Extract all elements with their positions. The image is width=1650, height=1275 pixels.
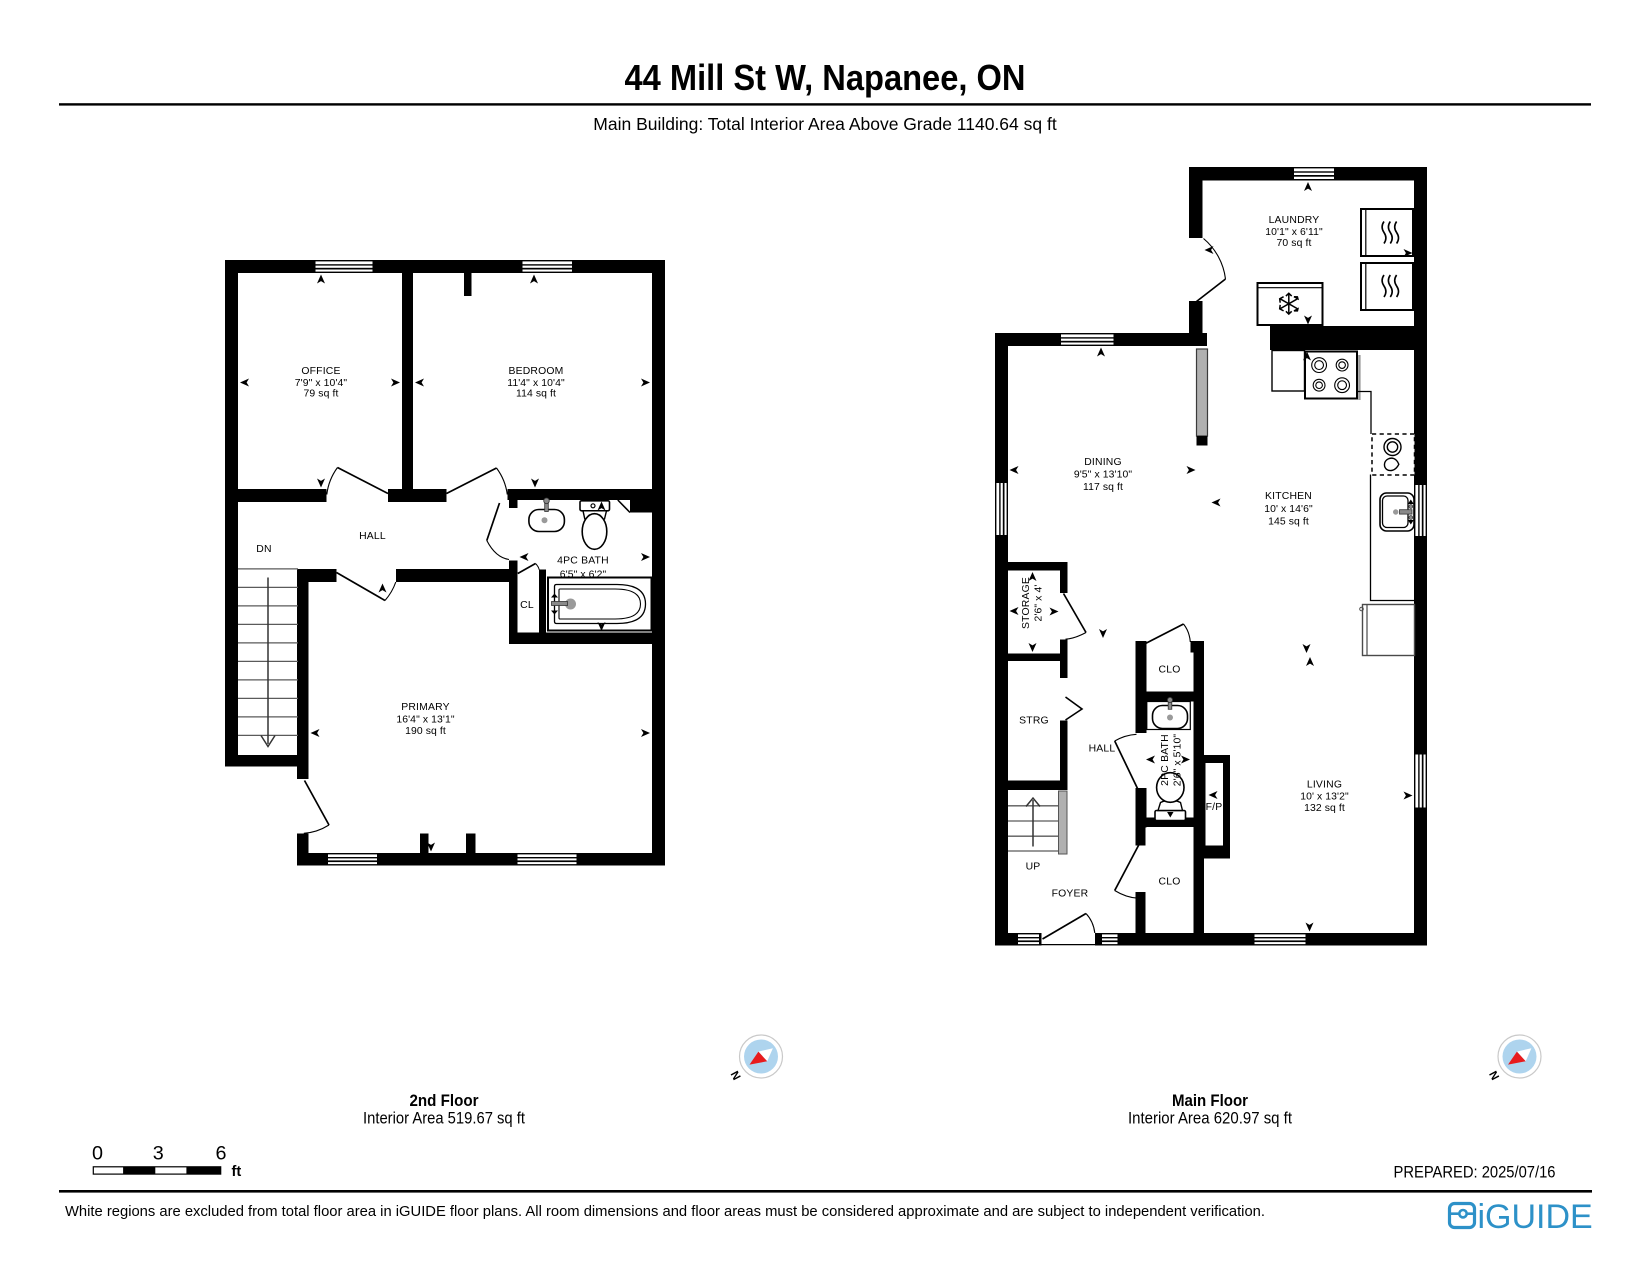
svg-text:10' x 14'6": 10' x 14'6" bbox=[1264, 504, 1313, 515]
svg-text:White regions are excluded fro: White regions are excluded from total fl… bbox=[65, 1203, 1265, 1220]
svg-text:HALL: HALL bbox=[1089, 744, 1116, 755]
svg-text:ft: ft bbox=[232, 1164, 242, 1180]
svg-text:CL: CL bbox=[520, 600, 534, 611]
svg-text:KITCHEN: KITCHEN bbox=[1265, 491, 1312, 502]
svg-text:LAUNDRY: LAUNDRY bbox=[1269, 215, 1320, 226]
svg-text:190 sq ft: 190 sq ft bbox=[405, 726, 446, 737]
svg-text:DINING: DINING bbox=[1084, 457, 1122, 468]
svg-text:2PC BATH: 2PC BATH bbox=[1160, 734, 1171, 786]
svg-text:2'6" x 5'10": 2'6" x 5'10" bbox=[1173, 734, 1184, 787]
svg-text:LIVING: LIVING bbox=[1307, 780, 1342, 791]
svg-text:16'4" x 13'1": 16'4" x 13'1" bbox=[396, 714, 454, 725]
svg-text:STORAGE: STORAGE bbox=[1021, 577, 1032, 629]
svg-text:Interior Area 620.97 sq ft: Interior Area 620.97 sq ft bbox=[1128, 1110, 1292, 1128]
svg-text:3: 3 bbox=[153, 1143, 164, 1165]
svg-text:117 sq ft: 117 sq ft bbox=[1083, 482, 1123, 493]
svg-text:PRIMARY: PRIMARY bbox=[401, 702, 450, 713]
svg-text:2'6" x 4': 2'6" x 4' bbox=[1034, 585, 1045, 622]
svg-text:9'5" x 13'10": 9'5" x 13'10" bbox=[1074, 470, 1132, 481]
svg-text:DN: DN bbox=[256, 544, 271, 555]
svg-text:7'9" x 10'4": 7'9" x 10'4" bbox=[295, 378, 348, 389]
svg-text:iGUIDE: iGUIDE bbox=[1478, 1198, 1593, 1236]
svg-text:UP: UP bbox=[1026, 862, 1041, 873]
svg-text:44 Mill St W, Napanee, ON: 44 Mill St W, Napanee, ON bbox=[625, 57, 1026, 98]
svg-text:0: 0 bbox=[92, 1143, 103, 1165]
svg-text:FOYER: FOYER bbox=[1052, 889, 1089, 900]
svg-text:STRG: STRG bbox=[1019, 716, 1049, 727]
svg-text:145 sq ft: 145 sq ft bbox=[1268, 516, 1309, 527]
svg-text:10' x 13'2": 10' x 13'2" bbox=[1300, 791, 1349, 802]
svg-text:OFFICE: OFFICE bbox=[301, 366, 340, 377]
svg-text:2nd Floor: 2nd Floor bbox=[410, 1092, 480, 1110]
svg-text:132 sq ft: 132 sq ft bbox=[1304, 803, 1345, 814]
svg-text:Interior Area 519.67 sq ft: Interior Area 519.67 sq ft bbox=[363, 1110, 525, 1128]
svg-text:11'4" x 10'4": 11'4" x 10'4" bbox=[507, 378, 565, 389]
svg-text:114 sq ft: 114 sq ft bbox=[516, 389, 556, 400]
svg-text:4PC BATH: 4PC BATH bbox=[557, 556, 609, 567]
svg-text:6'5" x 6'2": 6'5" x 6'2" bbox=[560, 570, 607, 581]
svg-text:PREPARED: 2025/07/16: PREPARED: 2025/07/16 bbox=[1394, 1163, 1556, 1182]
svg-text:Main Building: Total Interior: Main Building: Total Interior Area Above… bbox=[593, 114, 1057, 134]
svg-text:CLO: CLO bbox=[1159, 664, 1181, 675]
svg-text:HALL: HALL bbox=[359, 531, 386, 542]
svg-text:70 sq ft: 70 sq ft bbox=[1277, 238, 1312, 249]
svg-text:6: 6 bbox=[215, 1143, 226, 1165]
svg-text:10'1" x 6'11": 10'1" x 6'11" bbox=[1265, 227, 1323, 238]
svg-text:79 sq ft: 79 sq ft bbox=[304, 389, 339, 400]
svg-text:F/P: F/P bbox=[1206, 802, 1223, 813]
svg-text:Main Floor: Main Floor bbox=[1172, 1092, 1249, 1110]
svg-text:BEDROOM: BEDROOM bbox=[508, 366, 563, 377]
svg-text:CLO: CLO bbox=[1159, 876, 1181, 887]
